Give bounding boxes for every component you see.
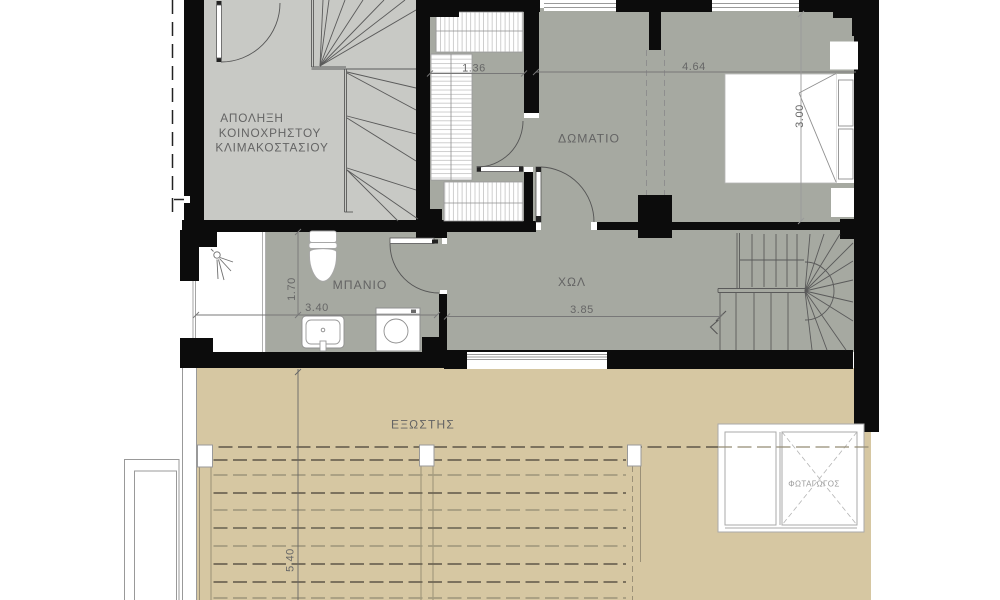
svg-text:4.64: 4.64 bbox=[682, 61, 706, 73]
svg-text:ΚΟΙΝΟΧΡΗΣΤΟΥ: ΚΟΙΝΟΧΡΗΣΤΟΥ bbox=[219, 126, 321, 140]
svg-text:ΦΩΤΑΓΩΓΟΣ: ΦΩΤΑΓΩΓΟΣ bbox=[788, 480, 840, 489]
svg-text:5.40: 5.40 bbox=[285, 548, 297, 572]
svg-text:ΑΠΟΛΗΞΗ: ΑΠΟΛΗΞΗ bbox=[220, 111, 284, 125]
svg-text:ΔΩΜΑΤΙΟ: ΔΩΜΑΤΙΟ bbox=[558, 132, 620, 146]
svg-text:ΚΛΙΜΑΚΟΣΤΑΣΙΟΥ: ΚΛΙΜΑΚΟΣΤΑΣΙΟΥ bbox=[215, 141, 328, 155]
svg-text:3.40: 3.40 bbox=[305, 302, 329, 314]
svg-text:ΜΠΑΝΙΟ: ΜΠΑΝΙΟ bbox=[333, 278, 388, 292]
svg-text:3.00: 3.00 bbox=[794, 104, 806, 128]
svg-text:ΕΞΩΣΤΗΣ: ΕΞΩΣΤΗΣ bbox=[391, 418, 455, 432]
svg-text:1.70: 1.70 bbox=[286, 277, 298, 301]
svg-text:3.85: 3.85 bbox=[570, 304, 594, 316]
svg-text:ΧΩΛ: ΧΩΛ bbox=[558, 275, 586, 289]
svg-text:1.36: 1.36 bbox=[462, 63, 486, 75]
